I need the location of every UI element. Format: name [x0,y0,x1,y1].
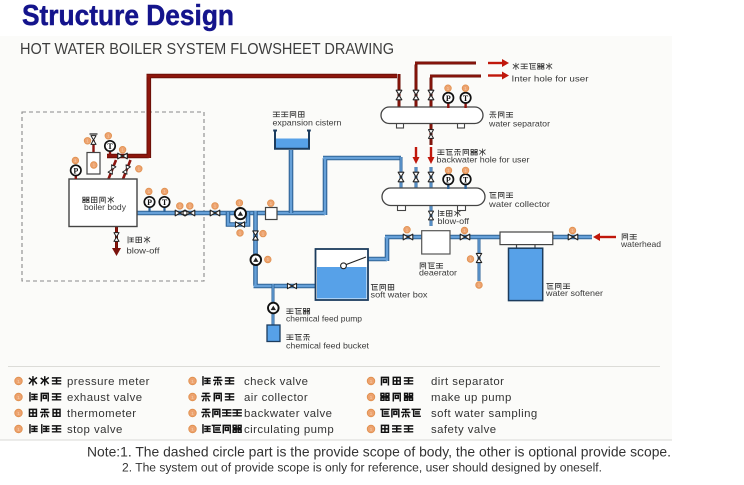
svg-text:check valve: check valve [244,376,308,388]
svg-text:pressure meter: pressure meter [67,376,150,388]
svg-text:deaerator: deaerator [419,268,457,278]
svg-text:Note:1. The dashed circle part: Note:1. The dashed circle part is the pr… [87,445,671,460]
svg-text:expansion cistern: expansion cistern [273,117,342,127]
svg-text:safety valve: safety valve [431,424,497,436]
svg-text:Structure Design: Structure Design [22,0,234,32]
svg-text:Inter hole for user: Inter hole for user [512,74,589,84]
svg-text:water softener: water softener [545,288,603,298]
svg-text:water separator: water separator [488,119,550,129]
svg-text:HOT WATER BOILER SYSTEM FLOWSH: HOT WATER BOILER SYSTEM FLOWSHEET DRAWIN… [20,41,394,58]
svg-text:soft water sampling: soft water sampling [431,408,538,420]
svg-text:chemical feed bucket: chemical feed bucket [286,341,370,351]
svg-text:exhaust valve: exhaust valve [67,392,143,404]
svg-text:stop valve: stop valve [67,424,123,436]
svg-text:2. The system out of provide: 2. The system out of provide scope is on… [122,461,602,475]
svg-text:blow-off: blow-off [127,246,161,256]
svg-text:blow-off: blow-off [438,216,470,226]
svg-text:chemical feed pump: chemical feed pump [286,314,362,324]
svg-text:backwater hole for user: backwater hole for user [437,155,530,165]
svg-text:dirt separator: dirt separator [431,376,504,388]
svg-text:waterhead: waterhead [620,239,661,249]
svg-text:circulating pump: circulating pump [244,424,334,436]
svg-text:thermometer: thermometer [67,408,137,420]
svg-text:soft water box: soft water box [371,290,429,300]
svg-text:boiler body: boiler body [84,202,127,212]
svg-text:air collector: air collector [244,392,308,404]
svg-text:water collector: water collector [488,199,550,209]
svg-text:backwater valve: backwater valve [244,408,332,420]
svg-text:make up pump: make up pump [431,392,512,404]
